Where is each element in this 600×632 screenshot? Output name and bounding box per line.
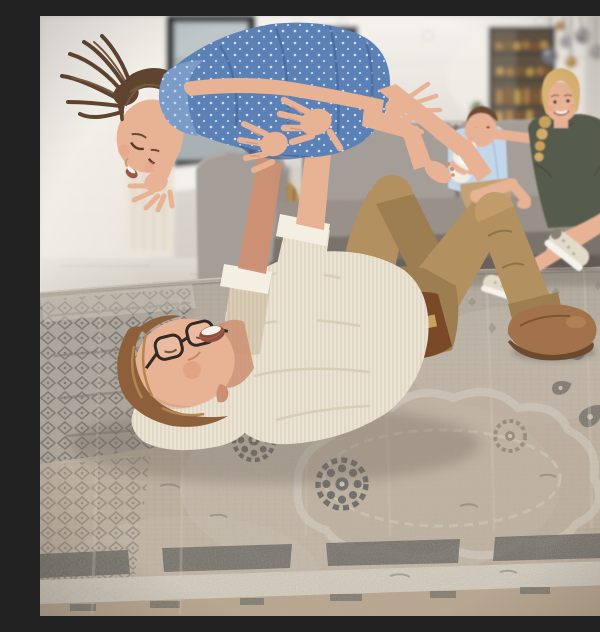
scene-svg: [40, 16, 600, 616]
vignette: [40, 16, 600, 616]
family-living-room-photo: Candid family photo in a bright modern l…: [40, 16, 600, 616]
